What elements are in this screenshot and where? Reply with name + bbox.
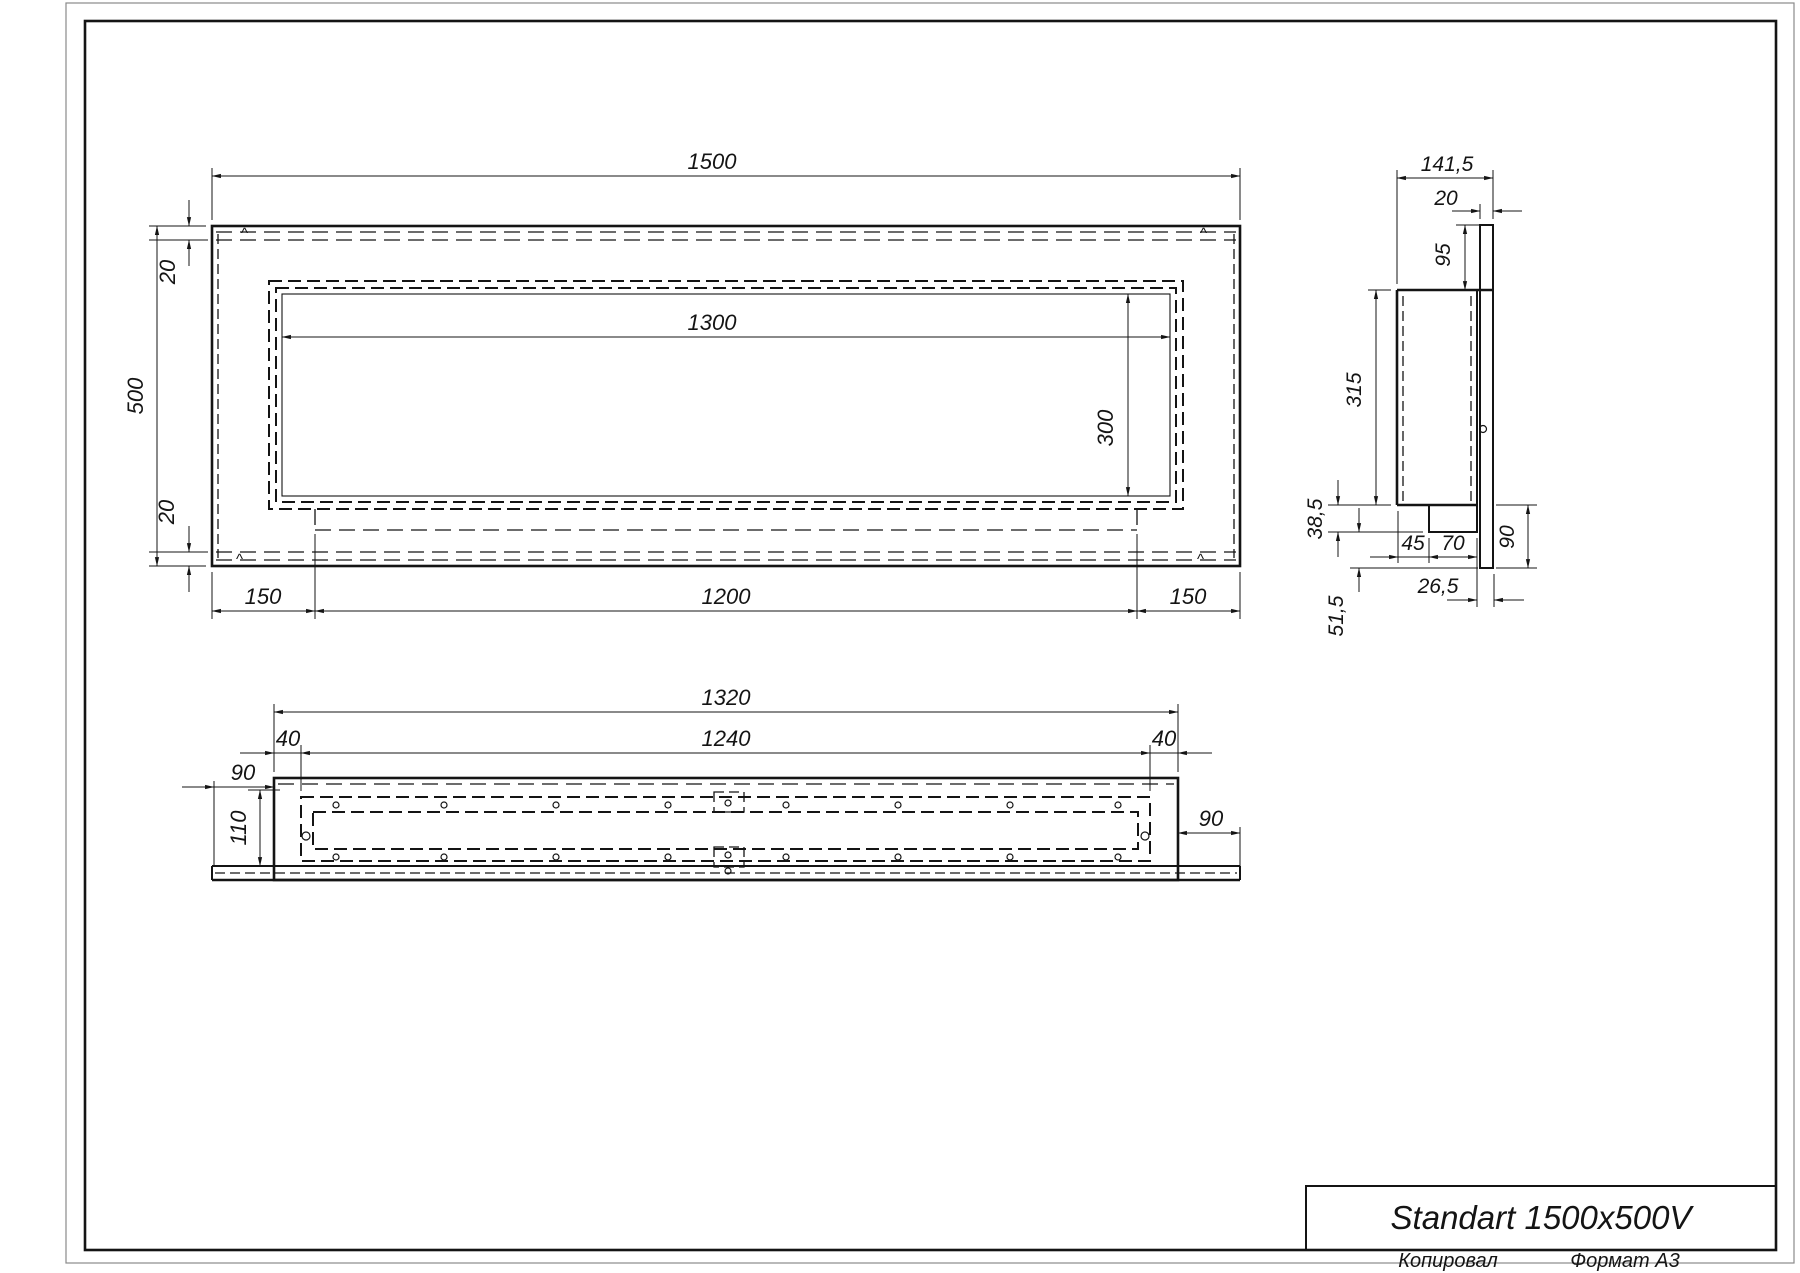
svg-text:20: 20 bbox=[155, 259, 180, 285]
svg-text:70: 70 bbox=[1441, 532, 1465, 555]
svg-text:141,5: 141,5 bbox=[1421, 153, 1474, 176]
svg-text:90: 90 bbox=[1199, 806, 1224, 831]
svg-text:315: 315 bbox=[1343, 372, 1366, 407]
dim-bottom-inner-depth: 110 bbox=[226, 790, 280, 866]
front-view: ^ ^ ^ ^ 1500 500 20 bbox=[123, 149, 1240, 619]
title-block: Standart 1500x500V bbox=[1306, 1186, 1776, 1250]
svg-text:150: 150 bbox=[245, 584, 282, 609]
drawing-sheet: ^ ^ ^ ^ 1500 500 20 bbox=[0, 0, 1800, 1273]
side-view-outline bbox=[1397, 225, 1493, 568]
svg-text:1320: 1320 bbox=[702, 685, 752, 710]
front-burner-hidden-lines bbox=[315, 509, 1137, 530]
bottom-view-outline bbox=[212, 778, 1240, 880]
dim-bottom-inner-chain: 40 1240 40 bbox=[240, 726, 1212, 791]
side-view: 141,5 20 95 315 38,5 bbox=[1304, 153, 1537, 636]
footer-copied-label: Копировал bbox=[1398, 1250, 1497, 1272]
svg-text:38,5: 38,5 bbox=[1304, 498, 1327, 539]
corner-mark: ^ bbox=[1200, 225, 1207, 242]
dim-front-opening-height: 300 bbox=[1093, 294, 1128, 496]
dim-front-top-offset: 20 bbox=[149, 200, 208, 285]
svg-text:90: 90 bbox=[1496, 525, 1519, 549]
corner-mark: ^ bbox=[241, 225, 248, 242]
svg-text:45: 45 bbox=[1401, 532, 1425, 555]
svg-text:95: 95 bbox=[1432, 243, 1455, 267]
svg-text:1500: 1500 bbox=[688, 149, 738, 174]
dim-bottom-right-flange: 90 bbox=[1178, 806, 1240, 866]
front-view-outline bbox=[212, 226, 1240, 566]
footer-format-label: Формат А3 bbox=[1570, 1250, 1679, 1272]
dim-side-flange-height: 95 bbox=[1432, 225, 1480, 290]
svg-text:26,5: 26,5 bbox=[1417, 575, 1459, 598]
dim-side-lower-drop: 51,5 bbox=[1325, 508, 1478, 636]
svg-text:90: 90 bbox=[231, 760, 256, 785]
svg-text:150: 150 bbox=[1170, 584, 1207, 609]
dim-front-bottom-offset: 20 bbox=[149, 499, 208, 592]
dim-front-overall-width: 1500 bbox=[212, 149, 1240, 220]
svg-text:300: 300 bbox=[1093, 409, 1118, 446]
dim-front-bottom-chain: 150 1200 150 bbox=[212, 534, 1240, 619]
dim-side-back-drop: 90 bbox=[1496, 505, 1537, 568]
svg-text:500: 500 bbox=[123, 377, 148, 414]
svg-text:1240: 1240 bbox=[702, 726, 752, 751]
svg-text:40: 40 bbox=[1152, 726, 1177, 751]
dim-side-flange-thickness: 20 bbox=[1433, 187, 1522, 219]
svg-text:20: 20 bbox=[154, 499, 179, 525]
dim-side-tray-chain: 45 70 bbox=[1370, 511, 1477, 563]
svg-text:40: 40 bbox=[276, 726, 301, 751]
dim-side-body-height: 315 bbox=[1343, 290, 1391, 505]
svg-text:20: 20 bbox=[1433, 187, 1458, 210]
svg-text:1300: 1300 bbox=[688, 310, 738, 335]
corner-mark: ^ bbox=[1197, 551, 1204, 568]
svg-text:1200: 1200 bbox=[702, 584, 752, 609]
svg-text:110: 110 bbox=[226, 810, 251, 846]
drawing-canvas: ^ ^ ^ ^ 1500 500 20 bbox=[0, 0, 1800, 1273]
corner-mark: ^ bbox=[236, 551, 243, 568]
front-corner-marks: ^ ^ ^ ^ bbox=[236, 225, 1207, 568]
sheet-footer: Копировал Формат А3 bbox=[1398, 1250, 1679, 1272]
drawing-title: Standart 1500x500V bbox=[1391, 1199, 1695, 1236]
dim-front-opening-width: 1300 bbox=[282, 310, 1170, 337]
bottom-view: 1320 40 1240 40 90 90 bbox=[182, 685, 1240, 880]
sheet-border bbox=[66, 3, 1794, 1263]
svg-text:51,5: 51,5 bbox=[1325, 595, 1348, 636]
